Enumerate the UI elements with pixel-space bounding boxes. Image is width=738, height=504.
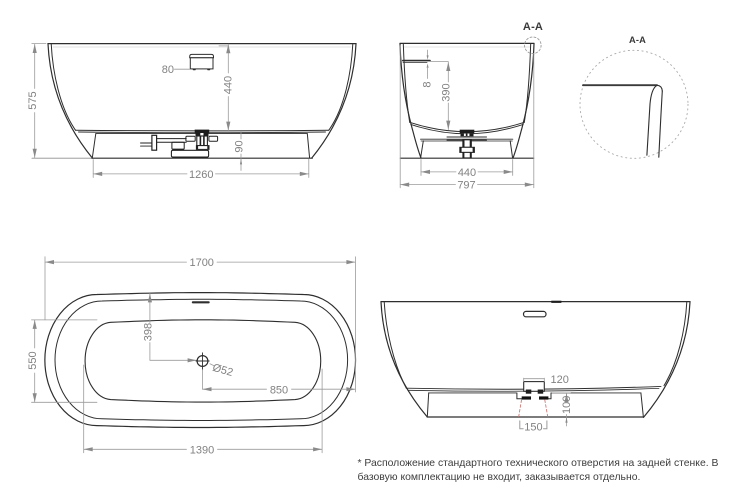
svg-text:150: 150 [524, 422, 542, 434]
svg-text:440: 440 [223, 76, 235, 94]
svg-text:575: 575 [27, 91, 39, 109]
svg-text:120: 120 [551, 374, 569, 386]
svg-text:398: 398 [142, 323, 154, 341]
svg-text:440: 440 [458, 167, 476, 179]
svg-text:8: 8 [421, 81, 433, 87]
svg-text:Ø52: Ø52 [211, 362, 234, 379]
svg-text:390: 390 [440, 83, 452, 101]
svg-text:A-A: A-A [523, 21, 543, 33]
svg-text:1260: 1260 [189, 169, 213, 181]
svg-text:90: 90 [234, 140, 246, 152]
svg-text:A-A: A-A [629, 35, 646, 45]
svg-text:850: 850 [270, 384, 288, 396]
svg-text:100: 100 [561, 396, 573, 414]
svg-text:1700: 1700 [189, 257, 213, 269]
svg-text:550: 550 [27, 351, 39, 369]
svg-text:80: 80 [162, 64, 174, 76]
svg-text:797: 797 [457, 180, 475, 192]
svg-text:1390: 1390 [190, 444, 214, 456]
